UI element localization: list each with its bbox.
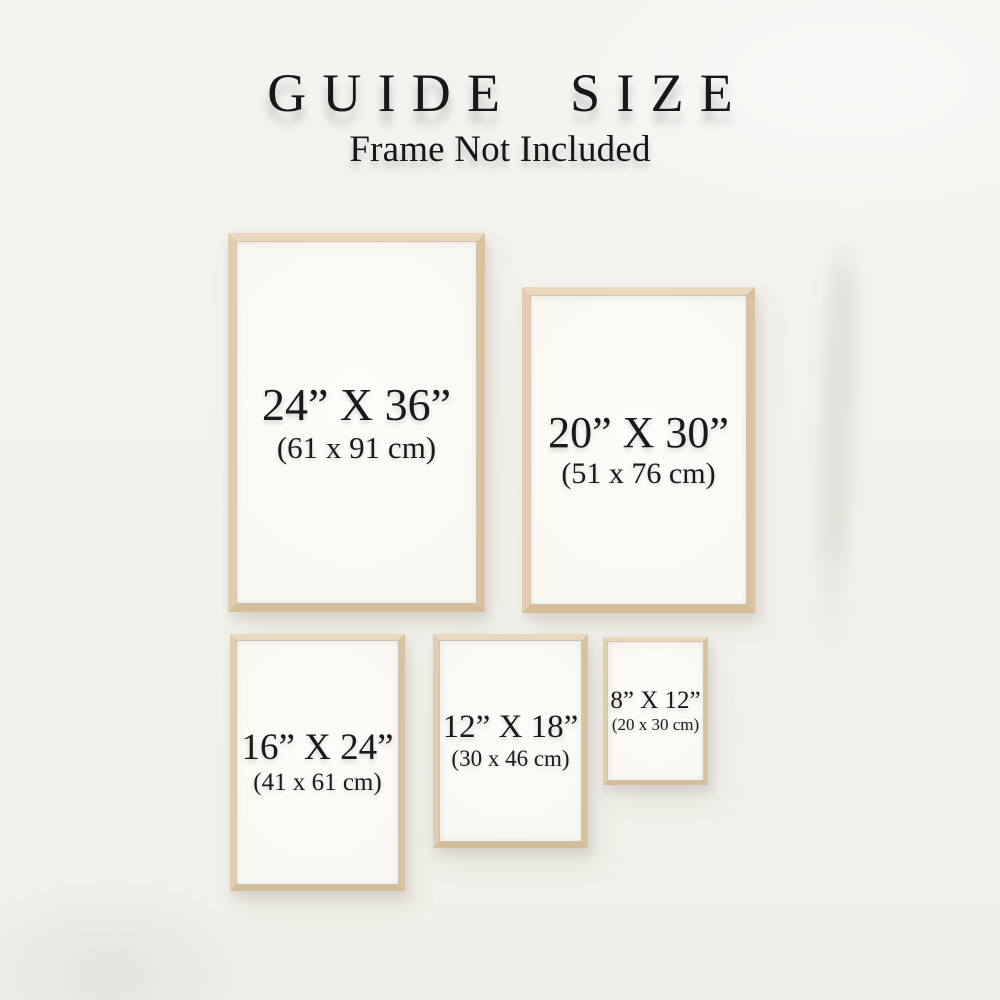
frame-24x36: 24” X 36” (61 x 91 cm) <box>228 233 485 612</box>
size-label-cm: (30 x 46 cm) <box>451 746 569 772</box>
size-label-inches: 8” X 12” <box>610 687 700 715</box>
frame-20x30: 20” X 30” (51 x 76 cm) <box>522 287 755 613</box>
frame-16x24-paper: 16” X 24” (41 x 61 cm) <box>236 640 399 885</box>
size-label-cm: (41 x 61 cm) <box>253 769 381 798</box>
size-label-inches: 20” X 30” <box>548 408 729 457</box>
frame-12x18: 12” X 18” (30 x 46 cm) <box>433 634 588 848</box>
page-title: GUIDE SIZE <box>0 62 1000 124</box>
frame-24x36-paper: 24” X 36” (61 x 91 cm) <box>236 241 477 604</box>
frame-16x24: 16” X 24” (41 x 61 cm) <box>230 634 405 891</box>
size-label-cm: (51 x 76 cm) <box>561 457 715 492</box>
size-label-cm: (20 x 30 cm) <box>612 715 699 735</box>
size-label-cm: (61 x 91 cm) <box>277 430 436 466</box>
size-label-inches: 16” X 24” <box>241 727 393 768</box>
frame-12x18-paper: 12” X 18” (30 x 46 cm) <box>439 640 582 842</box>
size-guide-poster: GUIDE SIZE Frame Not Included 24” X 36” … <box>0 0 1000 1000</box>
frame-8x12-paper: 8” X 12” (20 x 30 cm) <box>607 641 704 781</box>
frame-20x30-paper: 20” X 30” (51 x 76 cm) <box>530 295 747 605</box>
size-label-inches: 12” X 18” <box>443 709 579 746</box>
page-subtitle: Frame Not Included <box>0 128 1000 171</box>
frame-8x12: 8” X 12” (20 x 30 cm) <box>603 637 708 785</box>
wall-shadow <box>815 230 860 661</box>
size-label-inches: 24” X 36” <box>262 379 451 431</box>
